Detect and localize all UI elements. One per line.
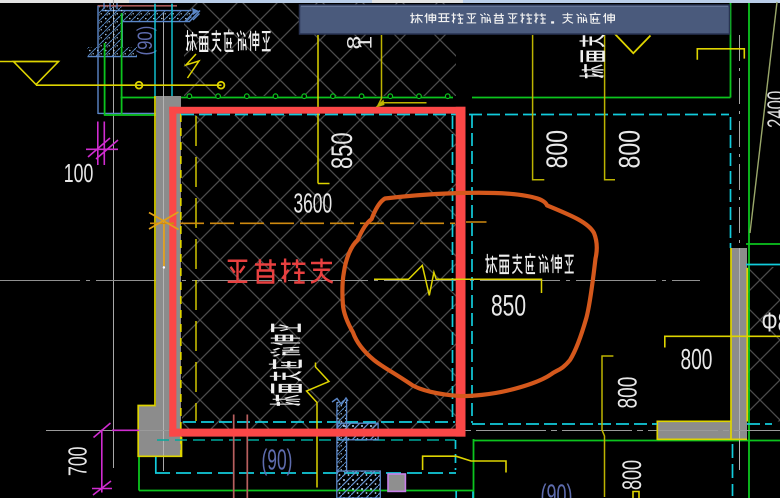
svg-text:850: 850 xyxy=(325,132,359,169)
svg-text:800: 800 xyxy=(612,377,642,409)
svg-text:(90): (90) xyxy=(541,479,573,498)
svg-text:700: 700 xyxy=(63,447,92,476)
svg-text:100: 100 xyxy=(64,159,93,188)
svg-text:800: 800 xyxy=(681,344,713,376)
svg-text:1: 1 xyxy=(354,36,376,50)
svg-text:800: 800 xyxy=(613,130,647,169)
svg-text:(90): (90) xyxy=(262,444,293,477)
svg-text:(90): (90) xyxy=(134,26,157,56)
svg-text:3600: 3600 xyxy=(294,187,333,218)
svg-text:Φ8: Φ8 xyxy=(762,307,780,338)
svg-text:850: 850 xyxy=(491,290,526,322)
svg-text:800: 800 xyxy=(540,130,574,169)
svg-text:800: 800 xyxy=(616,460,646,490)
